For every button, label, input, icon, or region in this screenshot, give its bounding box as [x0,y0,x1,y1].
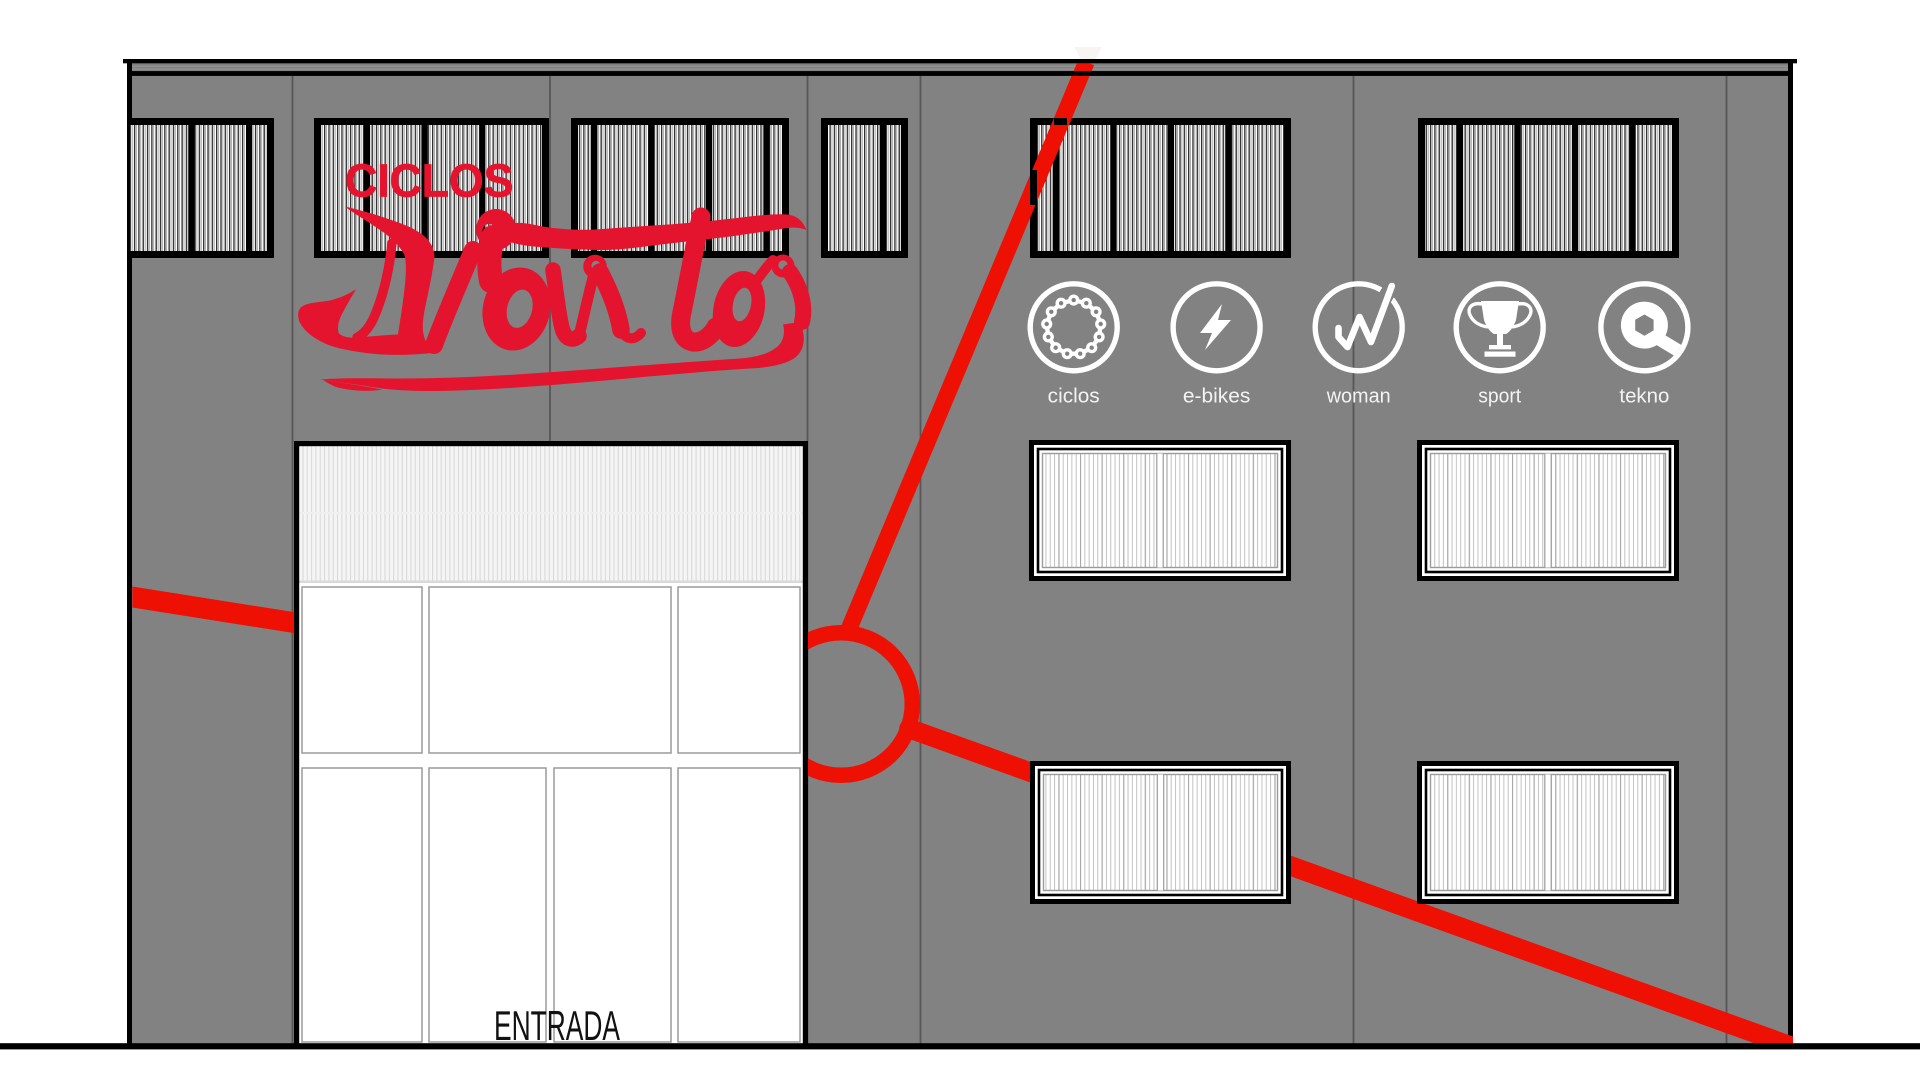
svg-text:woman: woman [1326,386,1391,408]
svg-text:sport: sport [1478,386,1521,408]
svg-text:CICLOS: CICLOS [345,155,514,207]
svg-text:ciclos: ciclos [1048,386,1100,408]
svg-text:e-bikes: e-bikes [1183,386,1251,408]
svg-text:ENTRADA: ENTRADA [494,1002,620,1049]
svg-text:tekno: tekno [1619,386,1669,408]
